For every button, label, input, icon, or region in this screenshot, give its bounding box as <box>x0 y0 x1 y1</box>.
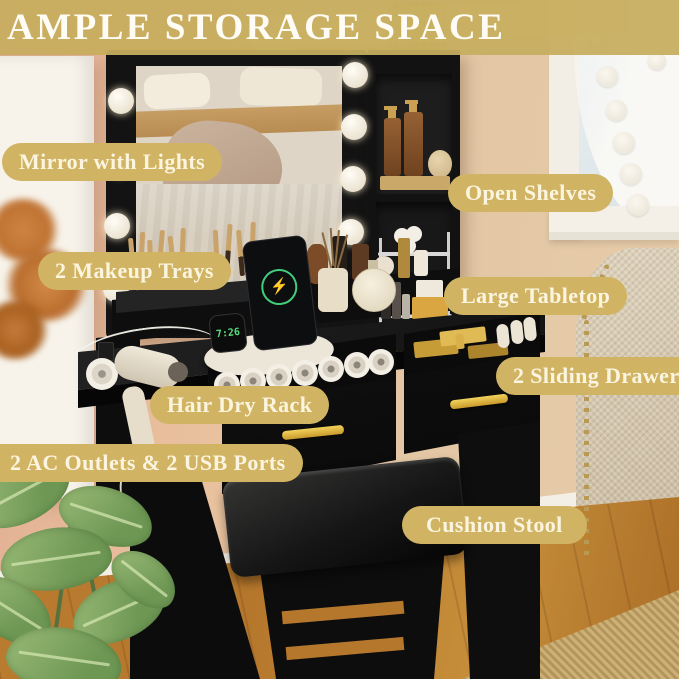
bottle-pump <box>405 100 418 104</box>
light-bulb <box>340 166 366 192</box>
smart-watch: 7:26 <box>208 312 248 354</box>
round-perfume-bottle <box>352 268 396 312</box>
label-cushion-stool: Cushion Stool <box>402 506 587 544</box>
label-makeup-trays: 2 Makeup Trays <box>38 252 231 290</box>
label-mirror-with-lights: Mirror with Lights <box>2 143 222 181</box>
bottle-pump <box>384 106 397 110</box>
mirror-reflection-pillow <box>239 67 322 108</box>
cosmetic-bottle <box>402 294 410 319</box>
cosmetic-bottle <box>510 319 524 344</box>
towel-roll <box>292 360 318 386</box>
pom-pom-garland <box>620 163 642 185</box>
pom-pom-garland <box>597 66 618 87</box>
towel-roll <box>344 352 370 378</box>
product-scene: ⚡ 7:26 A <box>0 0 679 679</box>
smartphone: ⚡ <box>242 235 319 352</box>
pom-pom-garland <box>613 132 635 154</box>
charging-ring: ⚡ <box>259 267 299 307</box>
light-bulb <box>108 88 134 114</box>
cosmetic-bottle <box>496 323 510 348</box>
towel-roll <box>368 349 394 375</box>
perfume-bottle <box>414 250 428 276</box>
reed-diffuser <box>318 268 348 312</box>
page-title: AMPLE STORAGE SPACE <box>0 0 505 55</box>
towel-roll <box>318 356 344 382</box>
label-hair-dry-rack: Hair Dry Rack <box>150 386 329 424</box>
cosmetic-bottle <box>523 316 537 341</box>
perfume-bottle <box>398 238 410 278</box>
pump-bottle <box>404 112 423 176</box>
lipstick <box>455 334 465 350</box>
wooden-tray <box>380 176 450 190</box>
label-large-tabletop: Large Tabletop <box>444 277 627 315</box>
light-bulb <box>104 213 130 239</box>
pom-pom-garland <box>627 194 649 216</box>
lightning-icon: ⚡ <box>269 278 289 295</box>
cosmetic-box <box>412 297 448 319</box>
pump-bottle <box>384 118 401 176</box>
body-brush <box>428 150 452 178</box>
title-banner: AMPLE STORAGE SPACE <box>0 0 679 55</box>
label-ac-usb-ports: 2 AC Outlets & 2 USB Ports <box>0 444 303 482</box>
light-bulb <box>342 62 368 88</box>
towel-roll <box>86 358 118 390</box>
pom-pom-garland <box>606 100 627 121</box>
watch-time: 7:26 <box>215 326 240 339</box>
mirror-reflection-pillow <box>143 72 211 109</box>
label-open-shelves: Open Shelves <box>448 174 613 212</box>
light-bulb <box>341 114 367 140</box>
label-sliding-drawers: 2 Sliding Drawers <box>496 357 679 395</box>
